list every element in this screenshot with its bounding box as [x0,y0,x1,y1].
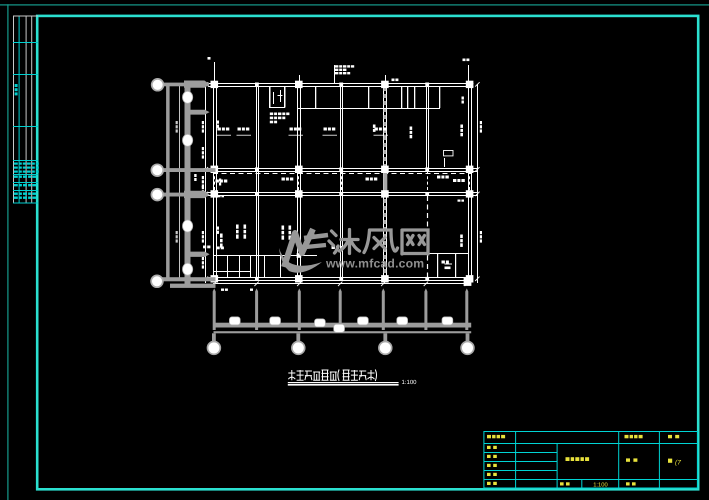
svg-text:(7: (7 [675,460,681,467]
svg-text:www.mfcad.com: www.mfcad.com [325,256,424,270]
svg-text:1:100: 1:100 [402,379,418,386]
svg-text:1:100: 1:100 [593,482,608,489]
